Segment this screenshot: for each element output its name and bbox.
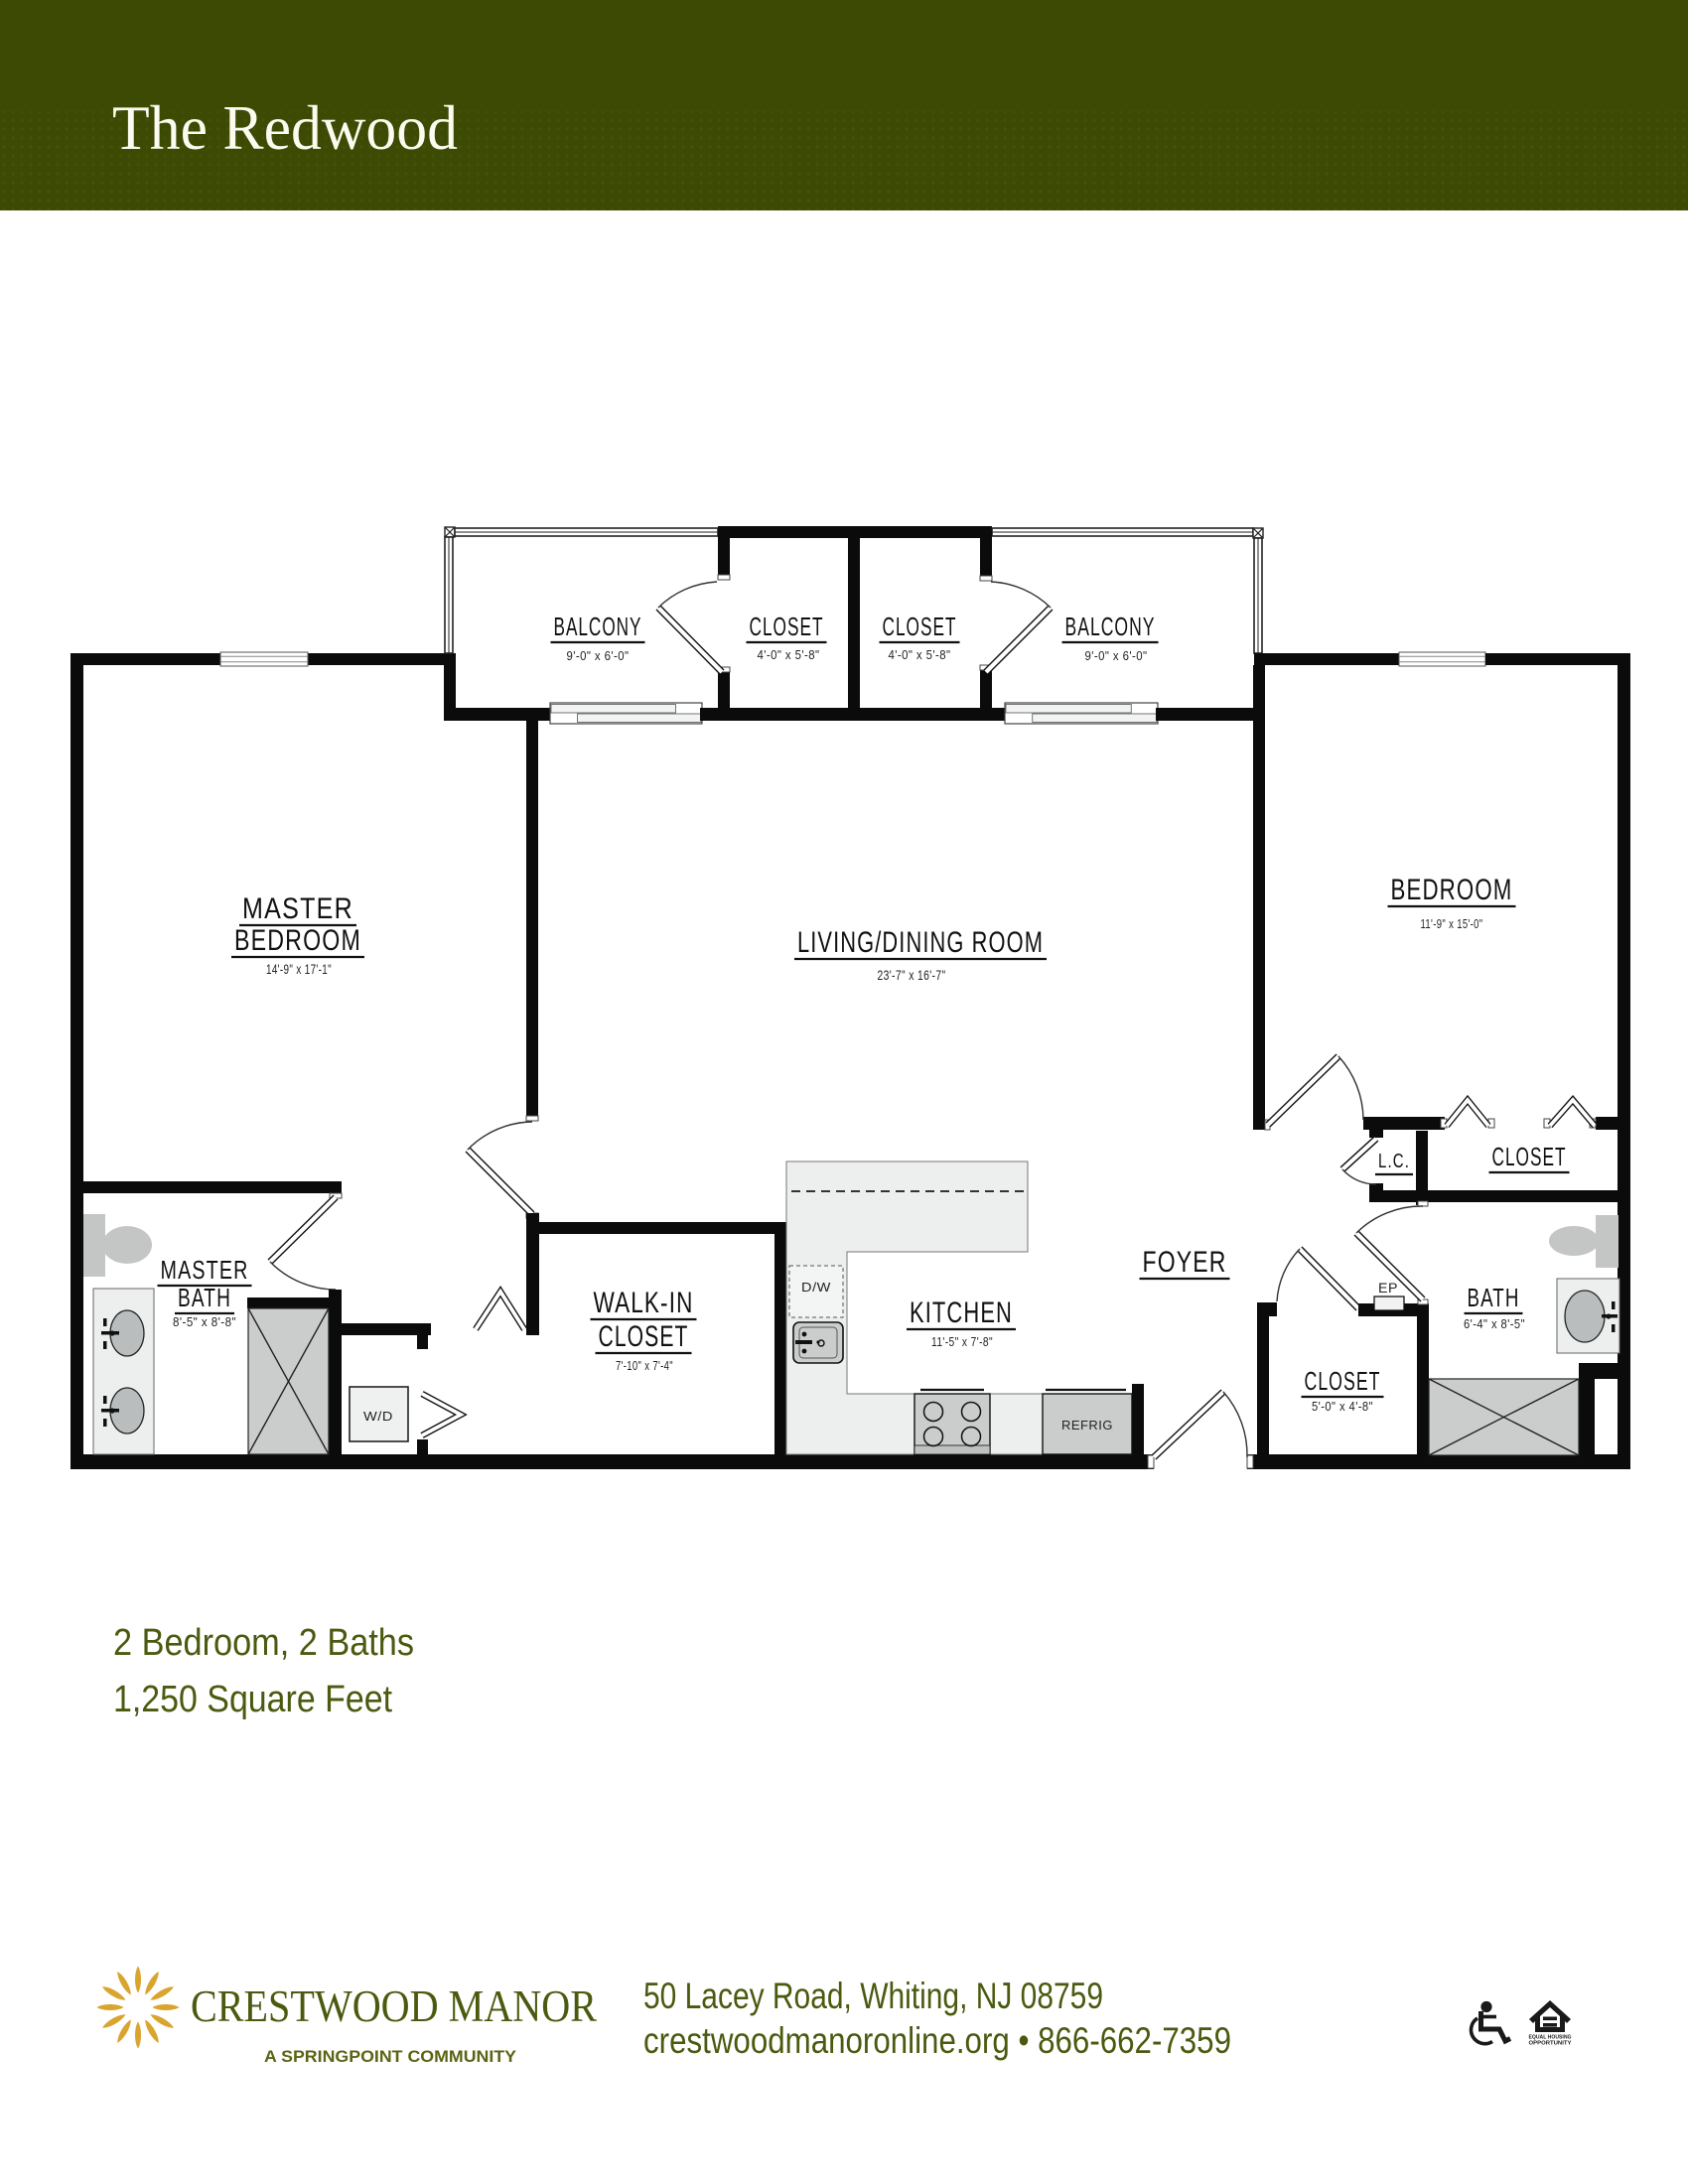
svg-text:OPPORTUNITY: OPPORTUNITY — [1529, 2041, 1572, 2047]
svg-text:KITCHEN: KITCHEN — [910, 1297, 1013, 1329]
svg-text:5'-0" x 4'-8": 5'-0" x 4'-8" — [1312, 1399, 1373, 1414]
svg-text:14'-9" x 17'-1": 14'-9" x 17'-1" — [266, 961, 332, 977]
svg-text:BEDROOM: BEDROOM — [1391, 874, 1513, 906]
svg-text:CLOSET: CLOSET — [1492, 1142, 1567, 1171]
svg-text:CRESTWOOD MANOR: CRESTWOOD MANOR — [191, 1981, 597, 2031]
svg-text:CLOSET: CLOSET — [883, 612, 957, 641]
svg-text:6'-4" x 8'-5": 6'-4" x 8'-5" — [1464, 1316, 1525, 1331]
svg-text:crestwoodmanoronline.org • 866: crestwoodmanoronline.org • 866-662-7359 — [643, 2020, 1231, 2061]
svg-text:CLOSET: CLOSET — [750, 612, 824, 641]
svg-text:7'-10" x 7'-4": 7'-10" x 7'-4" — [616, 1358, 673, 1373]
svg-text:BEDROOM: BEDROOM — [234, 924, 361, 957]
svg-text:L.C.: L.C. — [1378, 1151, 1410, 1172]
svg-text:8'-5" x 8'-8": 8'-5" x 8'-8" — [173, 1314, 236, 1329]
svg-text:23'-7" x 16'-7": 23'-7" x 16'-7" — [878, 967, 946, 983]
svg-text:BATH: BATH — [1468, 1283, 1520, 1312]
svg-text:CLOSET: CLOSET — [1305, 1366, 1381, 1396]
svg-text:4'-0" x 5'-8": 4'-0" x 5'-8" — [758, 647, 820, 662]
svg-text:50 Lacey Road, Whiting, NJ 087: 50 Lacey Road, Whiting, NJ 08759 — [643, 1976, 1103, 2016]
svg-text:WALK-IN: WALK-IN — [594, 1287, 694, 1319]
svg-text:9'-0" x 6'-0": 9'-0" x 6'-0" — [567, 648, 630, 663]
svg-text:REFRIG: REFRIG — [1061, 1418, 1113, 1433]
svg-text:W/D: W/D — [363, 1409, 393, 1424]
svg-text:MASTER: MASTER — [161, 1255, 249, 1285]
svg-text:4'-0" x 5'-8": 4'-0" x 5'-8" — [889, 647, 951, 662]
svg-text:EP: EP — [1378, 1280, 1398, 1296]
svg-text:FOYER: FOYER — [1143, 1246, 1227, 1279]
svg-text:A SPRINGPOINT COMMUNITY: A SPRINGPOINT COMMUNITY — [264, 2048, 516, 2066]
svg-text:CLOSET: CLOSET — [599, 1320, 689, 1353]
svg-text:D/W: D/W — [801, 1280, 831, 1295]
svg-text:BALCONY: BALCONY — [554, 612, 642, 641]
svg-text:The Redwood: The Redwood — [112, 92, 458, 163]
svg-text:2 Bedroom, 2 Baths: 2 Bedroom, 2 Baths — [113, 1622, 414, 1664]
svg-text:11'-9" x 15'-0": 11'-9" x 15'-0" — [1421, 916, 1483, 931]
svg-text:MASTER: MASTER — [242, 892, 353, 925]
svg-text:BATH: BATH — [178, 1283, 231, 1312]
svg-text:LIVING/DINING ROOM: LIVING/DINING ROOM — [797, 926, 1044, 959]
svg-text:9'-0" x 6'-0": 9'-0" x 6'-0" — [1085, 648, 1148, 663]
svg-text:11'-5" x 7'-8": 11'-5" x 7'-8" — [931, 1334, 993, 1349]
svg-text:1,250 Square Feet: 1,250 Square Feet — [113, 1679, 392, 1720]
svg-text:BALCONY: BALCONY — [1065, 612, 1156, 641]
